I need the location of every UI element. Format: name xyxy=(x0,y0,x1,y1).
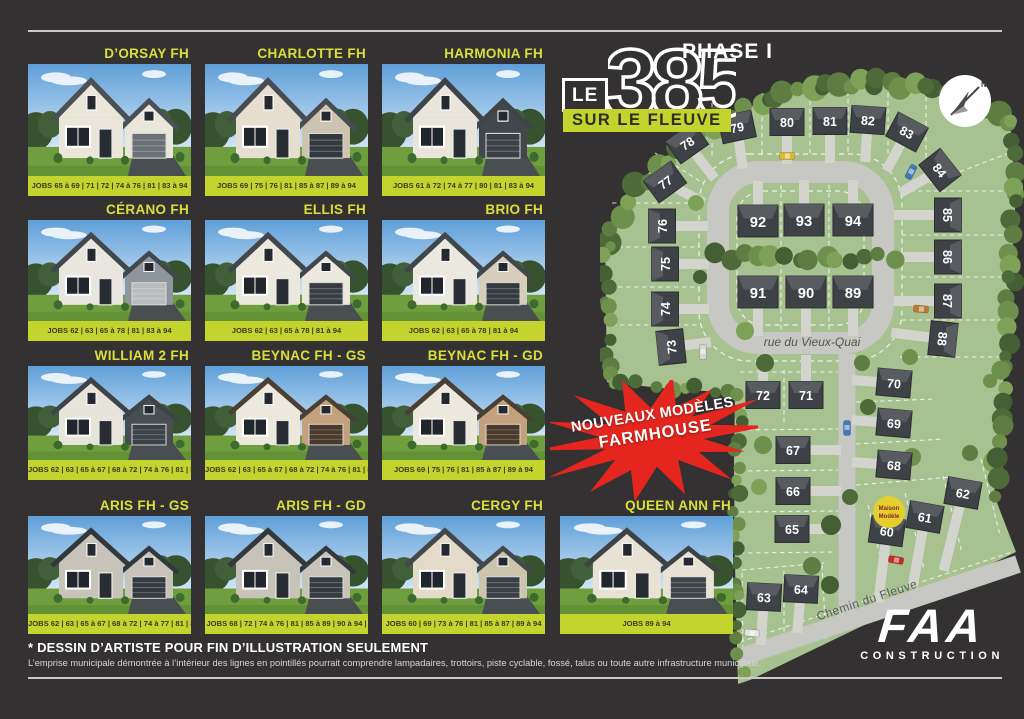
model-name: D’ORSAY FH xyxy=(28,46,191,64)
lot-number: 85 xyxy=(940,208,954,222)
lot-number: 74 xyxy=(659,302,673,316)
model-photo xyxy=(28,366,191,460)
model-home-badge: MaisonModèle xyxy=(873,496,905,528)
model-card: BEYNAC FH - GS JOBS 62 | 63 | 65 à 67 | … xyxy=(205,348,368,480)
logo-tagline: SUR LE FLEUVE xyxy=(563,109,731,132)
model-name: BEYNAC FH - GS xyxy=(205,348,368,366)
lot-number: 88 xyxy=(934,331,949,346)
model-card: CERGY FH JOBS 60 | 69 | 73 à 76 | 81 | 8… xyxy=(382,498,545,634)
lot-number: 91 xyxy=(750,286,766,302)
top-rule xyxy=(28,30,1002,32)
lot-number: 72 xyxy=(756,389,770,403)
model-photo xyxy=(28,516,191,614)
lot-number: 82 xyxy=(861,114,876,129)
model-jobs: JOBS 61 à 72 | 74 à 77 | 80 | 81 | 83 à … xyxy=(382,176,545,196)
model-card: ELLIS FH JOBS 62 | 63 | 65 à 78 | 81 à 9… xyxy=(205,202,368,341)
model-jobs: JOBS 62 | 63 | 65 à 67 | 68 à 72 | 74 à … xyxy=(28,460,191,480)
model-name: CÉRANO FH xyxy=(28,202,191,220)
lot-number: 81 xyxy=(823,115,837,129)
logo-le-box: LE xyxy=(562,78,608,112)
model-jobs: JOBS 62 | 63 | 65 à 78 | 81 | 83 à 94 xyxy=(28,321,191,341)
lot-number: 62 xyxy=(955,486,971,502)
lot-number: 92 xyxy=(750,215,766,231)
model-card: CÉRANO FH JOBS 62 | 63 | 65 à 78 | 81 | … xyxy=(28,202,191,341)
north-label: N xyxy=(981,80,987,89)
model-photo xyxy=(205,64,368,176)
model-photo xyxy=(205,516,368,614)
lot-number: 79 xyxy=(729,120,746,137)
model-card: D’ORSAY FH JOBS 65 à 69 | 71 | 72 | 74 à… xyxy=(28,46,191,196)
car-icon xyxy=(780,153,795,160)
badge-line1: Maison xyxy=(879,506,900,512)
model-jobs: JOBS 68 | 72 | 74 à 76 | 81 | 85 à 89 | … xyxy=(205,614,368,634)
model-card: WILLIAM 2 FH JOBS 62 | 63 | 65 à 67 | 68… xyxy=(28,348,191,480)
model-jobs: JOBS 60 | 69 | 73 à 76 | 81 | 85 à 87 | … xyxy=(382,614,545,634)
car-icon xyxy=(700,345,707,360)
model-name: WILLIAM 2 FH xyxy=(28,348,191,366)
model-card: HARMONIA FH JOBS 61 à 72 | 74 à 77 | 80 … xyxy=(382,46,545,196)
model-photo xyxy=(382,366,545,460)
bottom-rule xyxy=(28,677,1002,679)
lot-number: 70 xyxy=(886,376,901,391)
model-name: HARMONIA FH xyxy=(382,46,545,64)
model-card: BRIO FH JOBS 62 | 63 | 65 à 78 | 81 à 94 xyxy=(382,202,545,341)
car-icon xyxy=(913,305,929,313)
model-jobs: JOBS 65 à 69 | 71 | 72 | 74 à 76 | 81 | … xyxy=(28,176,191,196)
badge-line2: Modèle xyxy=(879,514,900,520)
model-card: BEYNAC FH - GD JOBS 69 | 75 | 76 | 81 | … xyxy=(382,348,545,480)
model-card: QUEEN ANN FH JOBS 89 à 94 xyxy=(560,498,733,634)
lot-number: 93 xyxy=(796,214,812,230)
model-name: ARIS FH - GS xyxy=(28,498,191,516)
phase-label: PHASE I xyxy=(682,40,773,64)
car-icon xyxy=(844,421,851,436)
lot-number: 94 xyxy=(845,214,862,230)
model-name: CHARLOTTE FH xyxy=(205,46,368,64)
lot-number: 76 xyxy=(656,219,670,233)
lot-number: 73 xyxy=(664,339,679,354)
model-jobs: JOBS 62 | 63 | 65 à 78 | 81 à 94 xyxy=(382,321,545,341)
model-photo xyxy=(560,516,733,614)
model-jobs: JOBS 89 à 94 xyxy=(560,614,733,634)
model-name: BEYNAC FH - GD xyxy=(382,348,545,366)
lot-number: 65 xyxy=(785,523,799,537)
model-name: BRIO FH xyxy=(382,202,545,220)
lot-number: 80 xyxy=(780,116,794,130)
model-card: CHARLOTTE FH JOBS 69 | 75 | 76 | 81 | 85… xyxy=(205,46,368,196)
lot-number: 63 xyxy=(757,591,772,606)
car-icon xyxy=(744,629,760,637)
model-name: ELLIS FH xyxy=(205,202,368,220)
model-name: ARIS FH - GD xyxy=(205,498,368,516)
lot-number: 64 xyxy=(794,583,809,598)
lot-number: 61 xyxy=(917,510,933,526)
model-photo xyxy=(28,220,191,321)
model-name: QUEEN ANN FH xyxy=(560,498,733,516)
faa-construction-logo: FAA CONSTRUCTION xyxy=(860,602,1004,662)
poster-root: { "poster": { "phase_label": "PHASE I", … xyxy=(0,0,1024,719)
model-card: ARIS FH - GD JOBS 68 | 72 | 74 à 76 | 81… xyxy=(205,498,368,634)
model-jobs: JOBS 62 | 63 | 65 à 67 | 68 à 72 | 74 à … xyxy=(205,460,368,480)
model-photo xyxy=(205,220,368,321)
street-label-vieux-quai: rue du Vieux-Quai xyxy=(764,335,861,349)
brand-name: FAA xyxy=(858,602,1007,649)
model-photo xyxy=(382,64,545,176)
model-card: ARIS FH - GS JOBS 62 | 63 | 65 à 67 | 68… xyxy=(28,498,191,634)
lot-number: 75 xyxy=(659,257,673,271)
model-jobs: JOBS 62 | 63 | 65 à 78 | 81 à 94 xyxy=(205,321,368,341)
model-photo xyxy=(28,64,191,176)
model-photo xyxy=(205,366,368,460)
lot-number: 86 xyxy=(940,250,954,264)
lot-number: 71 xyxy=(799,389,813,403)
lot-number: 87 xyxy=(940,294,954,308)
lot-number: 69 xyxy=(886,416,901,431)
lot-number: 68 xyxy=(886,458,901,473)
lot-number: 66 xyxy=(786,485,800,499)
lot-number: 67 xyxy=(786,444,800,458)
disclaimer-body: L’emprise municipale démontrée à l’intér… xyxy=(28,658,761,668)
lot-number: 89 xyxy=(845,286,861,302)
model-photo xyxy=(382,516,545,614)
model-photo xyxy=(382,220,545,321)
model-jobs: JOBS 69 | 75 | 76 | 81 | 85 à 87 | 89 à … xyxy=(205,176,368,196)
new-models-starburst: NOUVEAUX MODÈLES FARMHOUSE xyxy=(550,380,758,500)
north-compass-icon: N xyxy=(939,75,991,127)
model-name: CERGY FH xyxy=(382,498,545,516)
lot-number: 90 xyxy=(798,286,814,302)
model-jobs: JOBS 62 | 63 | 65 à 67 | 68 à 72 | 74 à … xyxy=(28,614,191,634)
disclaimer-title: * DESSIN D’ARTISTE POUR FIN D’ILLUSTRATI… xyxy=(28,640,428,655)
model-jobs: JOBS 69 | 75 | 76 | 81 | 85 à 87 | 89 à … xyxy=(382,460,545,480)
